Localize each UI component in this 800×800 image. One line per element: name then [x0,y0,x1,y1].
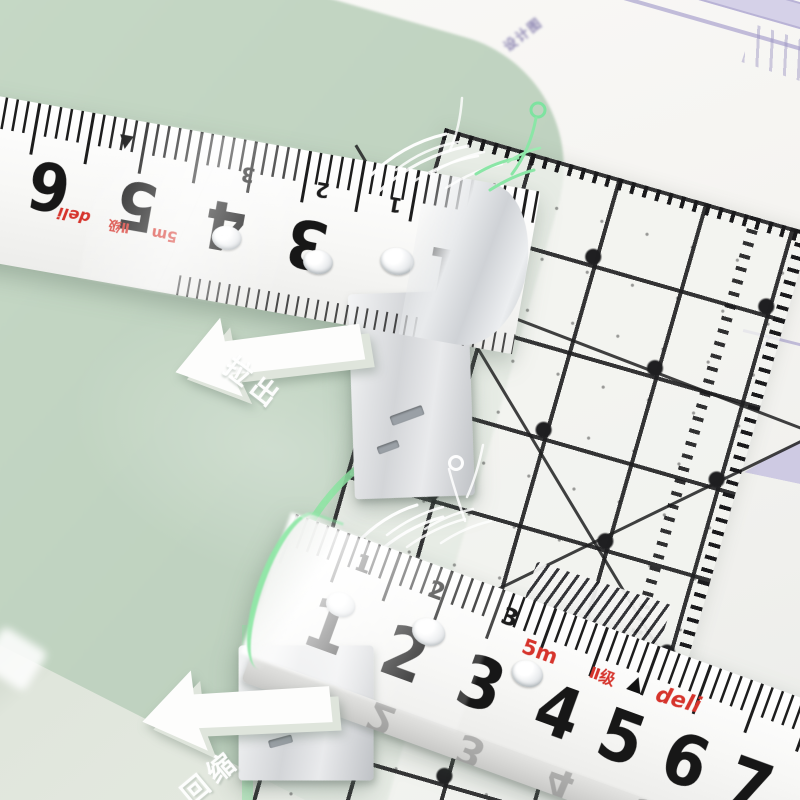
tape-digit: 5 [589,697,654,778]
retract-arrow [136,650,346,775]
product-photo-canvas: 设计图 ▼ 7 6 5 4 3 1 3 2 [0,0,800,800]
brand-text: deli [56,204,92,226]
motion-lines-upper [350,78,575,213]
tape-digit: 3 [449,644,514,725]
grade-text: Ⅱ级 [107,217,131,234]
cm-marker-upper: ▼ [117,132,134,152]
tape-digit: 7 [716,746,781,800]
tape-digit: 6 [653,721,718,800]
length-text: 5m [150,225,178,244]
